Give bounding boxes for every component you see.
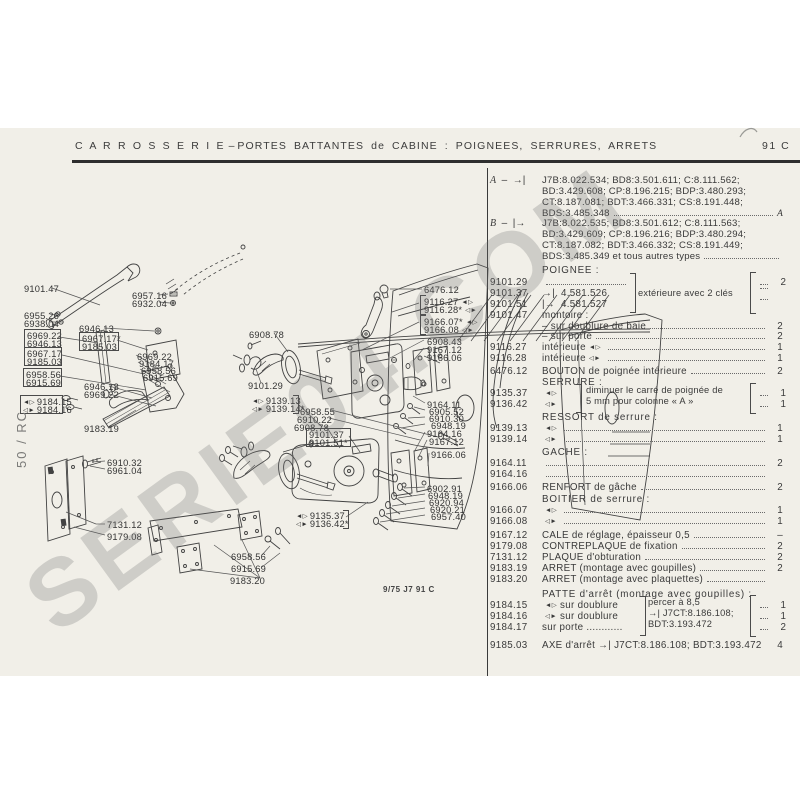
part-desc: sur doublure	[560, 600, 618, 611]
part-number-text: 6915.69	[231, 564, 266, 574]
part-number-label: 6958.56	[231, 552, 266, 562]
serial-block-marker: A – →|	[490, 175, 525, 186]
part-desc: montoire :	[542, 310, 589, 321]
part-desc: – sur porte	[542, 331, 592, 342]
part-number-label: 9183.20	[230, 576, 265, 586]
part-row: 9167.12CALE de réglage, épaisseur 0,5–	[490, 530, 783, 541]
part-number-text: 6476.12	[424, 285, 459, 295]
part-number-label: 6476.12	[424, 285, 459, 295]
quantity: 1	[772, 388, 786, 399]
group-qty-row	[756, 288, 784, 299]
part-row: 9101.51|→ 4.581.527	[490, 299, 630, 310]
part-number-label: 6961.04	[107, 466, 142, 476]
part-ref: 9183.20	[490, 574, 542, 585]
label-group-bracket	[420, 315, 426, 335]
part-row: 9166.06RENFORT de gâche2	[490, 482, 783, 493]
part-number-label: 6915.69	[231, 564, 266, 574]
label-group-box	[24, 347, 62, 366]
part-number-text: 9116.28*	[424, 305, 462, 315]
direction-icon: ◄▷	[545, 424, 557, 432]
direction-icon: ◁►	[252, 406, 264, 413]
part-ref: 9135.37	[490, 388, 542, 399]
part-ref: 9101.37	[490, 288, 542, 299]
plate-footnote: 9/75 J7 91 C	[383, 585, 435, 594]
quantity: 1	[769, 516, 783, 527]
label-group-bracket	[343, 510, 349, 529]
group-note-line: 5 mm pour colonne « A »	[586, 396, 693, 406]
parts-list: POIGNEE :9101.47montoire :– sur doublure…	[490, 0, 783, 800]
quantity: 2	[769, 563, 783, 574]
quantity: 4	[769, 640, 783, 651]
part-number-text: 6915.69	[143, 373, 178, 383]
part-row: 6476.12BOUTON de poignée intérieure2	[490, 366, 783, 377]
group-label: extérieure avec 2 clés	[638, 288, 733, 298]
part-number-text: 6938.04	[24, 319, 59, 329]
group-bracket-close	[576, 384, 582, 413]
column-divider	[487, 168, 488, 676]
part-ref: 9179.08	[490, 541, 542, 552]
part-ref: 9183.19	[490, 563, 542, 574]
leader-dots	[650, 328, 765, 329]
part-number-label: 9166.08◁►	[424, 325, 474, 335]
serial-arrow-icon: |→	[513, 218, 526, 229]
leader-dots	[645, 559, 765, 560]
part-row: 9183.20ARRET (montage avec plaquettes)	[490, 574, 783, 585]
section-heading: RESSORT de serrure :	[542, 412, 658, 423]
group-note-line: BDT:3.193.472	[648, 619, 712, 629]
group-qty-row: 2	[756, 622, 784, 633]
part-ref: 6476.12	[490, 366, 542, 377]
serial-dash: –	[496, 175, 513, 186]
part-number-label: 6915.69	[143, 373, 178, 383]
group-qty-row: 2	[756, 277, 784, 288]
quantity: 1	[772, 399, 786, 410]
direction-icon: ◁►	[296, 521, 308, 528]
group-qty-row: 1	[756, 600, 784, 611]
leader-dots	[760, 607, 768, 608]
serial-numbers-text: BD:3.429.608; CP:8.196.215; BDP:3.480.29…	[542, 186, 746, 197]
group-qty-row: 1	[756, 388, 784, 399]
part-row: 9116.27intérieure◄▷1	[490, 342, 783, 353]
serial-arrow-icon: →|	[542, 288, 561, 299]
part-number-label: 6938.04	[24, 319, 59, 329]
quantity: 2	[769, 552, 783, 563]
serial-numbers-line: BDS:3.485.349 et tous autres types	[542, 251, 783, 262]
section-heading-row: RESSORT de serrure :	[490, 412, 783, 423]
group-qty-row: 1	[756, 611, 784, 622]
label-group-bracket	[293, 395, 299, 414]
serial-numbers-line: BD:3.429.608; CP:8.196.215; BDP:3.480.29…	[542, 186, 783, 197]
part-ref: 9164.11	[490, 458, 542, 469]
section-heading-row: GACHE :	[490, 447, 783, 458]
part-desc: 4.581.527	[561, 299, 607, 310]
leader-dots	[564, 430, 765, 431]
part-desc: ARRET (montage avec plaquettes)	[542, 574, 703, 585]
part-number-text: 6932.04	[132, 299, 167, 309]
leader-dots	[564, 523, 765, 524]
part-number-text: 9166.06	[431, 450, 466, 460]
part-row: 9183.19ARRET (montage avec goupilles)2	[490, 563, 783, 574]
label-group-box	[24, 329, 61, 348]
part-ref: 7131.12	[490, 552, 542, 563]
part-row: 9101.47montoire :	[490, 310, 783, 321]
serial-numbers-line: J7B:8.022.535; BD8:3.501.612; C:8.111.56…	[542, 218, 783, 229]
quantity: 1	[769, 353, 783, 364]
leader-dots	[760, 406, 768, 407]
group-bracket-close	[630, 273, 636, 313]
group-bracket-close	[640, 596, 646, 636]
leader-dots	[760, 618, 768, 619]
part-row: 9116.28intérieure◁►1	[490, 353, 783, 364]
part-ref: 9166.06	[490, 482, 542, 493]
serial-numbers-text: J7B:8.022.535; BD8:3.501.612; C:8.111.56…	[542, 218, 740, 229]
leader-dots	[608, 360, 765, 361]
part-ref: 9139.14	[490, 434, 542, 445]
serial-numbers-line: BD:3.429.609; CP:8.196.216; BDP:3.480.29…	[542, 229, 783, 240]
part-desc: sur doublure	[560, 611, 618, 622]
direction-icon: ◁►	[462, 327, 474, 334]
margin-note: 50 / RC	[14, 398, 30, 468]
part-ref: 9101.29	[490, 277, 542, 288]
section-title: C A R R O S S E R I E	[75, 140, 226, 152]
part-desc: CALE de réglage, épaisseur 0,5	[542, 530, 690, 541]
quantity: 1	[769, 505, 783, 516]
label-group-box	[306, 428, 351, 447]
direction-icon: ◄▷	[589, 343, 601, 351]
leader-dots	[707, 581, 765, 582]
leader-dots	[546, 284, 626, 285]
part-desc: AXE d'arrêt →| J7CT:8.186.108; BDT:3.193…	[542, 640, 762, 651]
part-number-text: 9166.06	[427, 353, 462, 363]
part-number-label: ◁►9136.42*	[296, 519, 349, 529]
direction-icon: ◄▷	[545, 506, 557, 514]
section-heading: PATTE d'arrêt (montage avec goupilles) :	[542, 589, 752, 600]
part-row: 9135.37◄▷	[490, 388, 576, 399]
direction-icon: ◁►	[465, 307, 477, 314]
part-number-text: 9167.12	[429, 437, 464, 447]
direction-icon: ◁►	[545, 612, 557, 620]
quantity: 1	[769, 342, 783, 353]
group-note-line: →| J7CT:8.186.108;	[648, 608, 734, 618]
leader-dots	[641, 489, 765, 490]
quantity: 2	[769, 541, 783, 552]
label-group-box	[79, 332, 119, 351]
serial-arrow-icon: →|	[513, 175, 526, 186]
part-row: 7131.12PLAQUE d'obturation2	[490, 552, 783, 563]
section-heading: BOITIER de serrure :	[542, 494, 650, 505]
part-number-label: 6908.78	[249, 330, 284, 340]
leader-dots	[564, 441, 765, 442]
part-row: 9101.29	[490, 277, 630, 288]
part-number-text: 9166.08	[424, 325, 459, 335]
serial-numbers-text: BDS:3.485.349 et tous autres types	[542, 251, 700, 262]
quantity: 2	[772, 622, 786, 633]
direction-icon: ◁►	[545, 400, 557, 408]
leader-dots	[546, 476, 765, 477]
quantity: 2	[769, 458, 783, 469]
part-ref: 9185.03	[490, 640, 542, 651]
part-ref: 9166.07	[490, 505, 542, 516]
leader-dots	[691, 373, 765, 374]
serial-arrow-icon: |→	[542, 299, 561, 310]
part-desc: 4.581.526	[561, 288, 607, 299]
part-ref: 9101.51	[490, 299, 542, 310]
serial-numbers-text: BD:3.429.609; CP:8.196.216; BDP:3.480.29…	[542, 229, 746, 240]
section-heading-row: PATTE d'arrêt (montage avec goupilles) :	[490, 589, 783, 600]
quantity: 1	[769, 434, 783, 445]
section-heading-row: BOITIER de serrure :	[490, 494, 783, 505]
part-ref: 9164.16	[490, 469, 542, 480]
part-row: 9139.13◄▷1	[490, 423, 783, 434]
quantity: 2	[769, 331, 783, 342]
part-number-text: 6958.56	[231, 552, 266, 562]
part-ref: 9136.42	[490, 399, 542, 410]
part-row: 9136.42◁►	[490, 399, 576, 410]
leader-dots	[614, 215, 773, 216]
part-ref: 9184.16	[490, 611, 542, 622]
part-row: – sur porte2	[490, 331, 783, 342]
part-number-text: 9101.47	[24, 284, 59, 294]
leader-dots	[760, 299, 768, 300]
part-desc: BOUTON de poignée intérieure	[542, 366, 687, 377]
part-row: 9179.08CONTREPLAQUE de fixation2	[490, 541, 783, 552]
direction-icon: ◄▷	[545, 601, 557, 609]
part-number-label: 9166.06	[431, 450, 466, 460]
direction-icon: ◁►	[545, 435, 557, 443]
leader-dots	[596, 338, 765, 339]
leader-dots	[700, 570, 765, 571]
part-row: 9185.03AXE d'arrêt →| J7CT:8.186.108; BD…	[490, 640, 783, 651]
part-desc: intérieure	[542, 353, 586, 364]
part-ref: 9101.47	[490, 310, 542, 321]
part-desc: ARRET (montage avec goupilles)	[542, 563, 696, 574]
group-qty-row: 1	[756, 399, 784, 410]
part-number-text: 6961.04	[107, 466, 142, 476]
group-note-line: diminuer le carré de poignée de	[586, 385, 723, 395]
part-number-text: 6957.40	[431, 512, 466, 522]
quantity: –	[769, 530, 783, 541]
quantity: 1	[772, 611, 786, 622]
group-note-line: percer à 8,5	[648, 597, 700, 607]
part-row: 9166.07◄▷1	[490, 505, 783, 516]
part-number-text: 7131.12	[107, 520, 142, 530]
label-group-box	[23, 368, 62, 387]
leader-dots	[682, 548, 765, 549]
part-number-label: 9167.12	[429, 437, 464, 447]
serial-numbers-text: CT:8.187.082; BDT:3.466.332; CS:8.191.44…	[542, 240, 743, 251]
part-number-label: 6932.04	[132, 299, 167, 309]
part-row: 9184.16◁►sur doublure	[490, 611, 640, 622]
quantity: 2	[769, 482, 783, 493]
leader-dots	[564, 512, 765, 513]
part-number-text: 9179.08	[107, 532, 142, 542]
quantity: 1	[769, 423, 783, 434]
serial-block-marker: B – |→	[490, 218, 525, 229]
part-number-text: 9183.20	[230, 576, 265, 586]
part-number-text: 6969.22	[84, 390, 119, 400]
direction-icon: ◄▷	[545, 389, 557, 397]
serial-numbers-text: CT:8.187.081; BDT:3.466.331; CS:8.191.44…	[542, 197, 743, 208]
leader-dots	[608, 349, 765, 350]
part-ref: 9166.08	[490, 516, 542, 527]
leader-dots	[760, 629, 768, 630]
part-number-label: 7131.12	[107, 520, 142, 530]
part-row: 9164.112	[490, 458, 783, 469]
part-row: 9164.16	[490, 469, 783, 480]
part-number-label: 9183.19	[84, 424, 119, 434]
serial-numbers-line: CT:8.187.081; BDT:3.466.331; CS:8.191.44…	[542, 197, 783, 208]
quantity: 1	[772, 600, 786, 611]
leader-dots	[546, 465, 765, 466]
part-row: 9184.17sur porte ............	[490, 622, 640, 633]
part-ref: 9184.17	[490, 622, 542, 633]
part-ref: 9184.15	[490, 600, 542, 611]
quantity: 2	[772, 277, 786, 288]
part-row: 9184.15◄▷sur doublure	[490, 600, 640, 611]
quantity: 2	[769, 366, 783, 377]
part-desc: intérieure	[542, 342, 586, 353]
section-heading: POIGNEE :	[542, 265, 599, 276]
part-row: 9101.37→| 4.581.526	[490, 288, 630, 299]
leader-dots	[760, 288, 768, 289]
leader-dots	[704, 258, 779, 259]
part-desc: CONTREPLAQUE de fixation	[542, 541, 678, 552]
part-number-text: 9183.19	[84, 424, 119, 434]
part-number-text: 6908.78	[249, 330, 284, 340]
serial-numbers-text: J7B:8.022.534; BD8:3.501.611; C:8.111.56…	[542, 175, 740, 186]
group-qty-row	[756, 299, 784, 310]
header-dash: –	[229, 140, 235, 152]
section-heading: GACHE :	[542, 447, 588, 458]
part-number-label: 9116.28*◁►	[424, 305, 477, 315]
part-ref: 9167.12	[490, 530, 542, 541]
part-number-label: 6969.22	[84, 390, 119, 400]
direction-icon: ◁►	[545, 517, 557, 525]
part-ref: 9116.27	[490, 342, 542, 353]
part-number-label: 6957.40	[431, 512, 466, 522]
part-number-text: 9101.29	[248, 381, 283, 391]
serial-dash: –	[496, 218, 513, 229]
part-row: 9139.14◁►1	[490, 434, 783, 445]
section-heading-row: POIGNEE :	[490, 265, 783, 276]
part-ref: 9116.28	[490, 353, 542, 364]
serial-numbers-line: CT:8.187.082; BDT:3.466.332; CS:8.191.44…	[542, 240, 783, 251]
part-desc: PLAQUE d'obturation	[542, 552, 641, 563]
part-row: 9166.08◁►1	[490, 516, 783, 527]
leader-dots	[694, 537, 765, 538]
part-number-label: 9179.08	[107, 532, 142, 542]
part-ref: 9139.13	[490, 423, 542, 434]
catalog-page: { "header": { "section": "C A R R O S S …	[0, 0, 800, 800]
serial-numbers-line: J7B:8.022.534; BD8:3.501.611; C:8.111.56…	[542, 175, 783, 186]
part-desc: RENFORT de gâche	[542, 482, 637, 493]
part-desc: sur porte ............	[542, 622, 623, 633]
direction-icon: ◁►	[589, 354, 601, 362]
leader-dots	[760, 284, 768, 285]
part-number-label: 9101.29	[248, 381, 283, 391]
part-number-label: 9166.06	[427, 353, 462, 363]
part-number-label: 9101.47	[24, 284, 59, 294]
label-group-bracket	[420, 295, 426, 315]
leader-dots	[760, 395, 768, 396]
